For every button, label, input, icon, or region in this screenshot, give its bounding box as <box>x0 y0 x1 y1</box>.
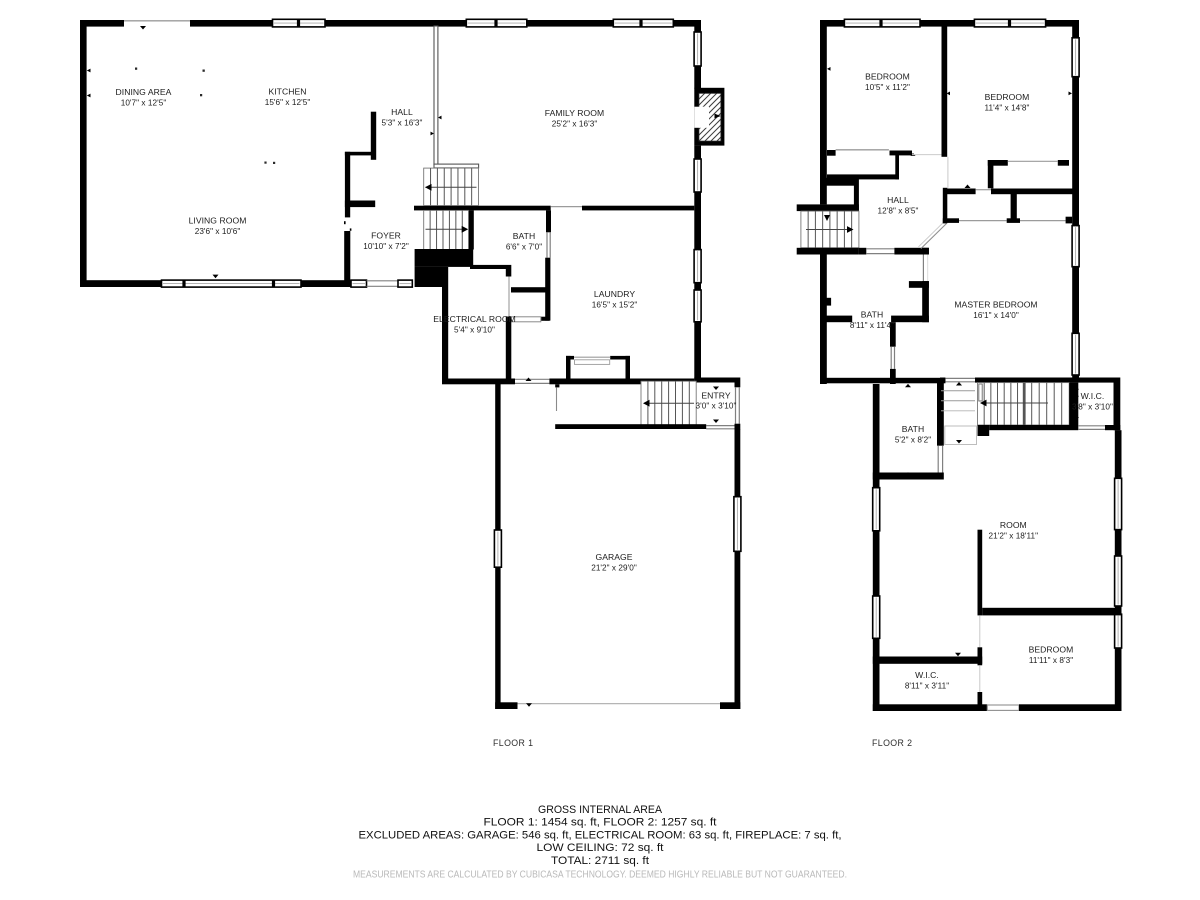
svg-text:16'1" x 14'0": 16'1" x 14'0" <box>973 311 1019 320</box>
svg-text:FAMILY ROOM: FAMILY ROOM <box>545 108 604 118</box>
svg-text:10'5" x 11'2": 10'5" x 11'2" <box>865 83 910 92</box>
svg-text:BATH: BATH <box>902 424 924 434</box>
svg-text:21'2" x 18'11": 21'2" x 18'11" <box>989 532 1039 541</box>
svg-text:6'6" x 7'0": 6'6" x 7'0" <box>506 242 542 251</box>
svg-text:FOYER: FOYER <box>371 231 401 241</box>
svg-text:11'11" x 8'3": 11'11" x 8'3" <box>1029 656 1073 665</box>
svg-text:DINING AREA: DINING AREA <box>116 87 172 97</box>
svg-text:BATH: BATH <box>861 310 883 320</box>
svg-text:ROOM: ROOM <box>1000 520 1027 530</box>
svg-text:EXCLUDED AREAS: GARAGE: 546 sq: EXCLUDED AREAS: GARAGE: 546 sq. ft, ELEC… <box>359 829 842 841</box>
svg-text:MEASUREMENTS ARE CALCULATED BY: MEASUREMENTS ARE CALCULATED BY CUBICASA … <box>353 869 847 880</box>
svg-text:KITCHEN: KITCHEN <box>268 87 306 97</box>
svg-text:8'11" x 3'11": 8'11" x 3'11" <box>905 681 949 690</box>
svg-text:BATH: BATH <box>513 231 535 241</box>
svg-text:5'2" x 8'2": 5'2" x 8'2" <box>895 435 931 444</box>
svg-text:3'0" x 3'10": 3'0" x 3'10" <box>696 402 737 411</box>
svg-text:8'11" x 11'4": 8'11" x 11'4" <box>850 321 894 330</box>
svg-text:23'6" x 10'6": 23'6" x 10'6" <box>195 227 241 236</box>
svg-text:GARAGE: GARAGE <box>595 552 632 562</box>
svg-text:5'4" x 9'10": 5'4" x 9'10" <box>454 325 495 334</box>
svg-text:HALL: HALL <box>887 195 909 205</box>
svg-text:ENTRY: ENTRY <box>701 390 730 400</box>
svg-text:16'5" x 15'2": 16'5" x 15'2" <box>592 300 638 309</box>
svg-text:W.I.C.: W.I.C. <box>915 670 939 680</box>
svg-text:12'8" x 8'5": 12'8" x 8'5" <box>878 207 919 216</box>
svg-text:BEDROOM: BEDROOM <box>865 72 910 82</box>
svg-text:ELECTRICAL ROOM: ELECTRICAL ROOM <box>433 314 516 324</box>
svg-text:LAUNDRY: LAUNDRY <box>594 289 635 299</box>
svg-text:W.I.C.: W.I.C. <box>1081 391 1105 401</box>
svg-text:TOTAL: 2711 sq. ft: TOTAL: 2711 sq. ft <box>551 855 650 867</box>
svg-text:15'6" x 12'5": 15'6" x 12'5" <box>265 98 311 107</box>
svg-text:3'8" x 3'10": 3'8" x 3'10" <box>1072 403 1113 412</box>
svg-text:MASTER BEDROOM: MASTER BEDROOM <box>954 300 1037 310</box>
svg-text:FLOOR 2: FLOOR 2 <box>872 738 912 748</box>
svg-text:BEDROOM: BEDROOM <box>1029 645 1074 655</box>
svg-text:21'2" x 29'0": 21'2" x 29'0" <box>591 563 637 572</box>
svg-text:10'7" x 12'5": 10'7" x 12'5" <box>121 99 167 108</box>
svg-text:HALL: HALL <box>391 107 413 117</box>
svg-text:GROSS INTERNAL AREA: GROSS INTERNAL AREA <box>538 804 662 816</box>
svg-text:LOW CEILING: 72 sq. ft: LOW CEILING: 72 sq. ft <box>537 842 665 854</box>
svg-text:5'3" x 16'3": 5'3" x 16'3" <box>382 118 423 127</box>
svg-text:10'10" x 7'2": 10'10" x 7'2" <box>363 242 409 251</box>
svg-text:FLOOR 1: FLOOR 1 <box>493 738 533 748</box>
svg-text:FLOOR 1: 1454 sq. ft, FLOOR 2:: FLOOR 1: 1454 sq. ft, FLOOR 2: 1257 sq. … <box>484 817 718 829</box>
svg-text:11'4" x 14'8": 11'4" x 14'8" <box>985 103 1030 112</box>
svg-text:LIVING ROOM: LIVING ROOM <box>189 216 247 226</box>
svg-text:25'2" x 16'3": 25'2" x 16'3" <box>552 119 598 128</box>
svg-text:BEDROOM: BEDROOM <box>985 92 1030 102</box>
